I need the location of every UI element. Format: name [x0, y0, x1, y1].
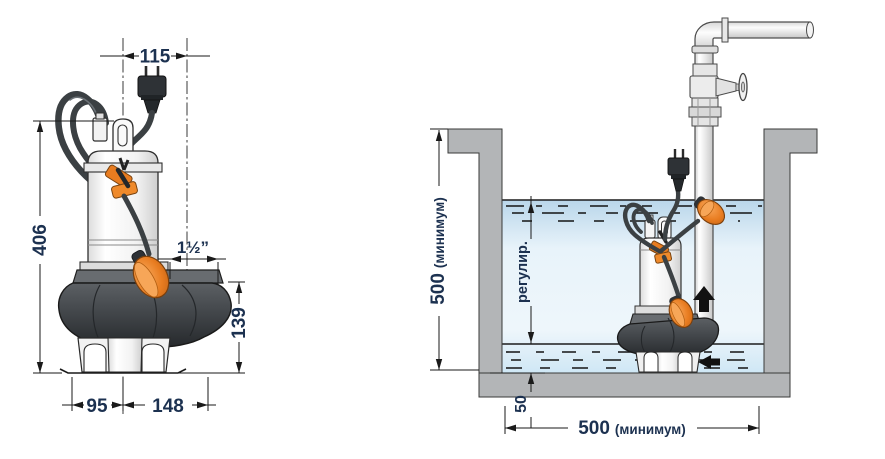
dim-pit-width-label: 500(минимум) [578, 418, 686, 439]
dim-pit-depth: 500(минимум) [428, 129, 479, 370]
installation-view: 500(минимум) регулир. 50 500(минимум) [428, 18, 817, 439]
pump-technical-drawing: 115 [0, 0, 885, 459]
dim-volute-height-label: 139 [229, 307, 250, 339]
carry-handle [113, 119, 133, 152]
dim-pit-depth-label: 500(минимум) [428, 197, 449, 305]
dim-level-range-label: регулир. [515, 241, 531, 303]
pump-volute-small [618, 318, 719, 357]
elbow-flange [722, 18, 728, 42]
pipe-open-end [807, 22, 814, 38]
dim-pit-width: 500(минимум) [505, 406, 759, 439]
dimensional-view: 115 [30, 38, 250, 417]
power-plug-icon [138, 66, 166, 113]
dim-discharge-port-label: 1½” [177, 238, 209, 257]
drawing-svg: 115 [0, 0, 885, 459]
dim-plug-offset: 115 [100, 47, 210, 68]
dim-plug-offset-label: 115 [140, 47, 171, 68]
dim-base-widths: 95 148 [62, 377, 216, 417]
pit-wall-left [448, 129, 502, 373]
gate-valve [690, 64, 747, 101]
horizontal-pipe [728, 22, 810, 38]
pump-feet-small [636, 352, 700, 372]
dim-axis-to-volute-edge-label: 148 [152, 396, 184, 417]
dim-foot-to-axis-label: 95 [86, 396, 108, 417]
power-plug-icon-right [668, 149, 689, 191]
pit-wall-right [764, 129, 817, 373]
dim-bottom-clearance-label: 50 [513, 395, 530, 413]
dim-overall-height-label: 406 [30, 224, 51, 256]
pump-feet [60, 338, 186, 373]
pit-floor [479, 373, 790, 397]
pipe-union [689, 98, 721, 126]
